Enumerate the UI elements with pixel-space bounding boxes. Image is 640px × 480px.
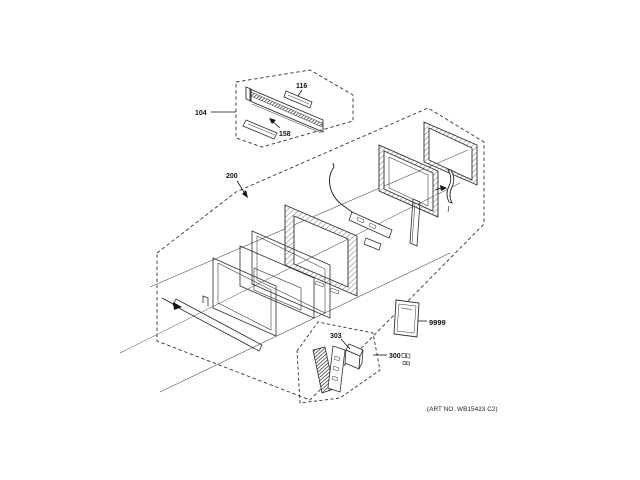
callout-arrowheads [242,118,276,198]
exploded-view-diagram: 104 116 158 200 303 300 9999 (ART NO. WB… [0,0,640,480]
slotted-bracket [349,212,392,238]
diagram-canvas: 104 116 158 200 303 300 9999 (ART NO. WB… [0,0,640,480]
small-clip-plate [364,238,381,250]
front-door-frame [213,258,276,336]
callout-303: 303 [330,333,342,340]
callout-104: 104 [195,110,207,117]
callout-300: 300 [389,353,401,360]
arrowhead-200 [242,190,248,198]
control-panel-boundary [236,70,353,147]
choke-cover-panel [240,246,314,318]
art-number-note: (ART NO. WB15423 C2) [427,406,498,413]
callout-158: 158 [279,131,291,138]
callout-116: 116 [296,83,307,90]
latch-perforated-plate [328,346,345,392]
callout-200: 200 [226,173,238,180]
callout-9999: 9999 [429,318,446,327]
control-panel-bar [246,87,323,133]
explosion-guide-lines [120,150,468,392]
latch-box-bracket [345,344,363,369]
door-wire [330,163,362,220]
latch-spring-clip [447,170,454,212]
